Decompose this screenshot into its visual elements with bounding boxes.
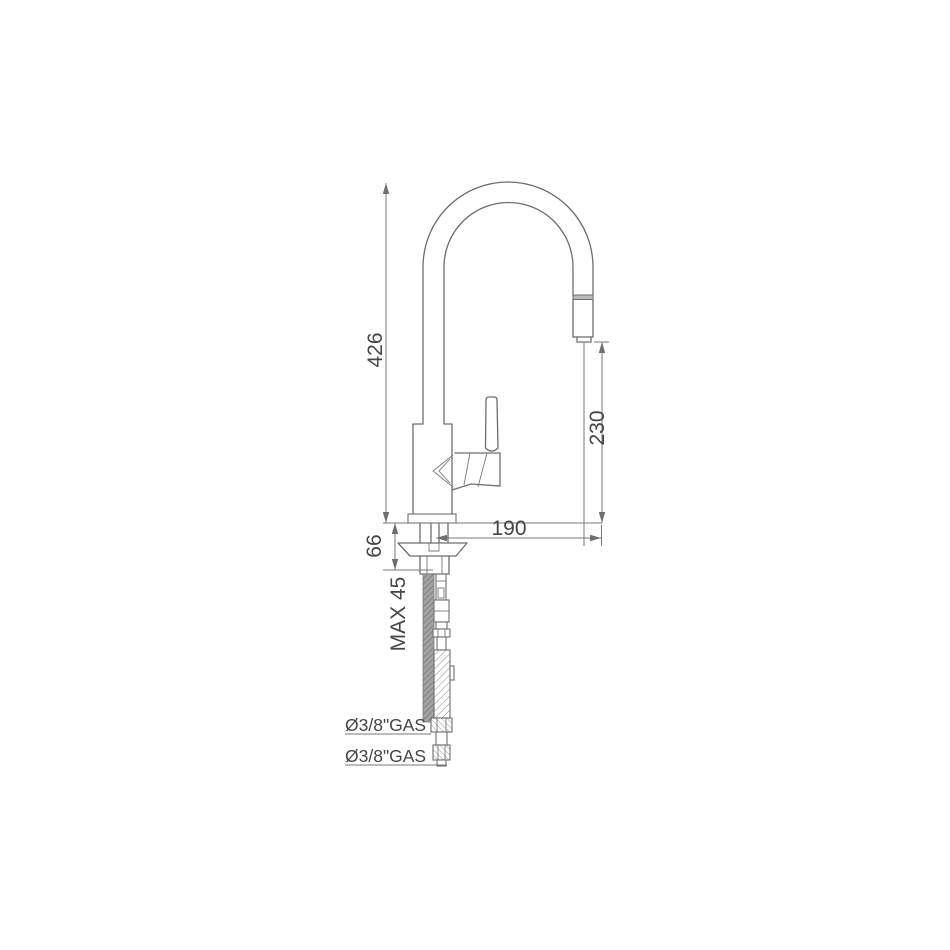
supply-hose-assembly	[431, 574, 454, 766]
arrow-down-icon	[392, 559, 398, 570]
nut-facet	[427, 556, 442, 574]
dim-label-spout-reach: 190	[491, 517, 526, 540]
faucet-body	[413, 424, 453, 514]
dimension-shank-length: 66	[363, 523, 398, 570]
hose-tube	[436, 574, 446, 600]
connection-label-1: Ø3/8"GAS	[345, 715, 431, 735]
threaded-stud	[423, 574, 434, 722]
bracket-tab	[429, 543, 439, 551]
dimension-spout-reach: 190	[436, 517, 601, 541]
handle-housing	[452, 453, 500, 490]
body-joint-chevron	[433, 455, 453, 487]
lever-rod	[486, 397, 499, 451]
spray-head-body	[573, 300, 593, 338]
hose-bump	[450, 666, 454, 680]
connection-label-2: Ø3/8"GAS	[345, 746, 447, 766]
gas-label-1: Ø3/8"GAS	[345, 715, 426, 735]
hose-tube-2	[436, 732, 447, 745]
handle-housing-lines	[464, 453, 487, 487]
clamping-bracket	[398, 543, 467, 556]
nut-outline	[420, 556, 449, 574]
arrow-up-icon	[383, 183, 389, 194]
arrow-up-icon	[599, 342, 605, 353]
spout-inner-edge	[444, 203, 573, 425]
arrow-down-icon	[599, 512, 605, 523]
faucet-technical-drawing: 426 230 190 66 MAX 45 Ø3/8"	[0, 0, 950, 950]
dim-label-shank-length: 66	[363, 534, 386, 557]
dimension-outlet-height: 230	[586, 342, 609, 523]
gas-nut-2	[433, 745, 450, 760]
faucet-outline	[408, 182, 593, 523]
mounting-nut	[420, 556, 449, 574]
dim-label-outlet-height: 230	[586, 410, 609, 445]
arrow-left-icon	[436, 535, 447, 541]
hose-hex	[433, 629, 450, 637]
arrow-down-icon	[383, 512, 389, 523]
dimension-max-deck-thickness: MAX 45	[387, 577, 410, 652]
braided-hose	[434, 650, 450, 718]
spout-outer-edge	[423, 182, 593, 424]
gas-label-2: Ø3/8"GAS	[345, 746, 426, 766]
dim-label-max-deck-thickness: MAX 45	[387, 577, 410, 652]
gas-nut-1	[431, 718, 452, 732]
arrow-up-icon	[392, 523, 398, 534]
gooseneck-spout	[423, 182, 593, 424]
pullout-spray-head	[573, 295, 593, 342]
technical-drawing-page: 426 230 190 66 MAX 45 Ø3/8"	[0, 0, 950, 950]
body-sides	[413, 424, 452, 514]
flange-plate	[408, 514, 456, 523]
hose-neck	[437, 637, 446, 650]
hose-collar	[436, 622, 447, 629]
dim-label-total-height: 426	[364, 332, 387, 367]
spray-head-outlet	[577, 337, 591, 342]
lever-handle	[452, 397, 500, 490]
dimension-total-height: 426	[364, 183, 389, 523]
bracket-outline	[398, 543, 467, 556]
arrow-right-icon	[590, 535, 601, 541]
base-flange	[408, 514, 456, 523]
spray-head-ring	[573, 295, 593, 300]
